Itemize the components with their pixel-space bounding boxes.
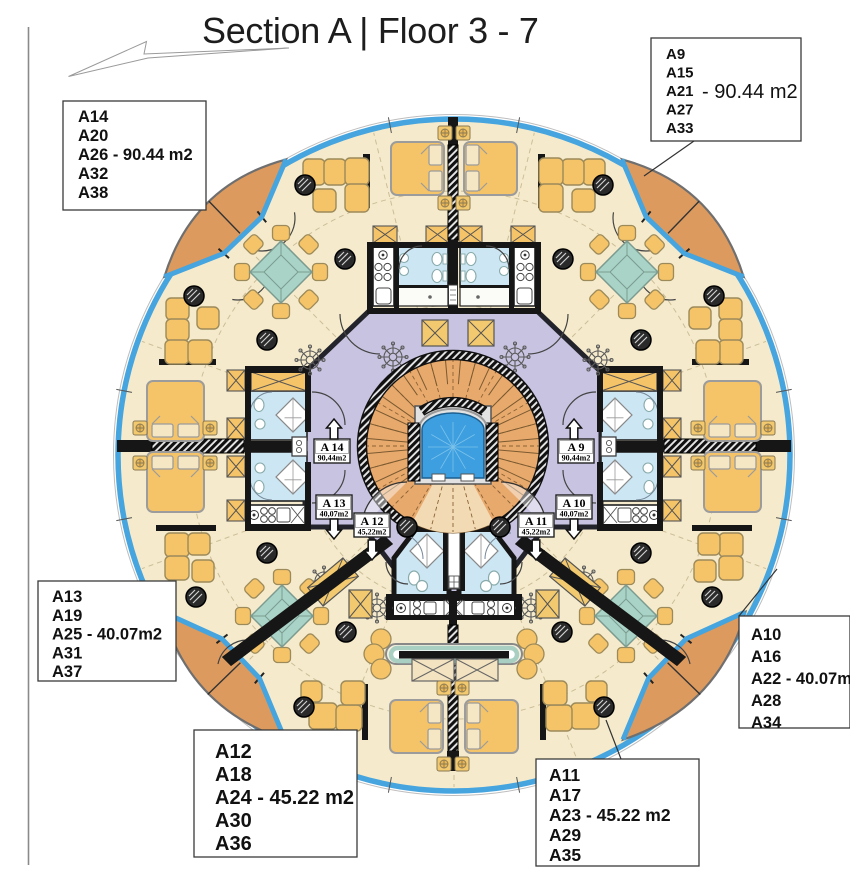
svg-text:45,22m2: 45,22m2 xyxy=(522,528,551,537)
svg-text:A 14: A 14 xyxy=(320,440,343,454)
svg-text:A 13: A 13 xyxy=(322,496,345,510)
svg-text:A29: A29 xyxy=(549,825,581,845)
svg-text:A11: A11 xyxy=(549,765,580,785)
svg-text:A 11: A 11 xyxy=(525,514,547,528)
svg-text:A30: A30 xyxy=(215,810,252,832)
svg-text:A 10: A 10 xyxy=(562,496,585,510)
svg-text:A13: A13 xyxy=(52,588,82,606)
svg-text:A35: A35 xyxy=(549,845,581,865)
svg-text:A32: A32 xyxy=(78,165,108,183)
svg-text:A27: A27 xyxy=(666,102,694,119)
svg-text:A10: A10 xyxy=(751,626,781,644)
svg-text:- 90.44 m2: - 90.44 m2 xyxy=(702,81,798,103)
svg-text:A 9: A 9 xyxy=(567,440,584,454)
svg-text:90,44m2: 90,44m2 xyxy=(562,454,591,463)
svg-text:A9: A9 xyxy=(666,46,685,63)
svg-text:A14: A14 xyxy=(78,108,109,126)
svg-text:A26 - 90.44 m2: A26 - 90.44 m2 xyxy=(78,146,193,164)
svg-text:A33: A33 xyxy=(666,120,694,137)
svg-text:45,22m2: 45,22m2 xyxy=(358,528,387,537)
svg-text:A24 - 45.22 m2: A24 - 45.22 m2 xyxy=(215,787,354,809)
svg-text:A15: A15 xyxy=(666,65,694,82)
svg-text:A34: A34 xyxy=(751,714,782,732)
svg-text:40,07m2: 40,07m2 xyxy=(560,510,589,519)
svg-text:40,07m2: 40,07m2 xyxy=(320,510,349,519)
svg-text:90,44m2: 90,44m2 xyxy=(318,454,347,463)
svg-text:A17: A17 xyxy=(549,785,581,805)
svg-text:A23 - 45.22 m2: A23 - 45.22 m2 xyxy=(549,805,671,825)
svg-text:A22 - 40.07m2: A22 - 40.07m2 xyxy=(751,670,850,688)
svg-text:A38: A38 xyxy=(78,184,108,202)
svg-text:A16: A16 xyxy=(751,648,781,666)
svg-text:A20: A20 xyxy=(78,127,108,145)
svg-text:A21: A21 xyxy=(666,83,694,100)
svg-text:A19: A19 xyxy=(52,607,82,625)
svg-text:A31: A31 xyxy=(52,644,82,662)
svg-text:A25 - 40.07m2: A25 - 40.07m2 xyxy=(52,626,162,644)
svg-text:A18: A18 xyxy=(215,764,252,786)
svg-text:A28: A28 xyxy=(751,692,781,710)
svg-text:A 12: A 12 xyxy=(360,514,383,528)
svg-text:A12: A12 xyxy=(215,741,252,763)
svg-text:A36: A36 xyxy=(215,833,252,855)
svg-text:A37: A37 xyxy=(52,663,82,681)
svg-text:Section A | Floor 3 - 7: Section A | Floor 3 - 7 xyxy=(202,10,539,51)
